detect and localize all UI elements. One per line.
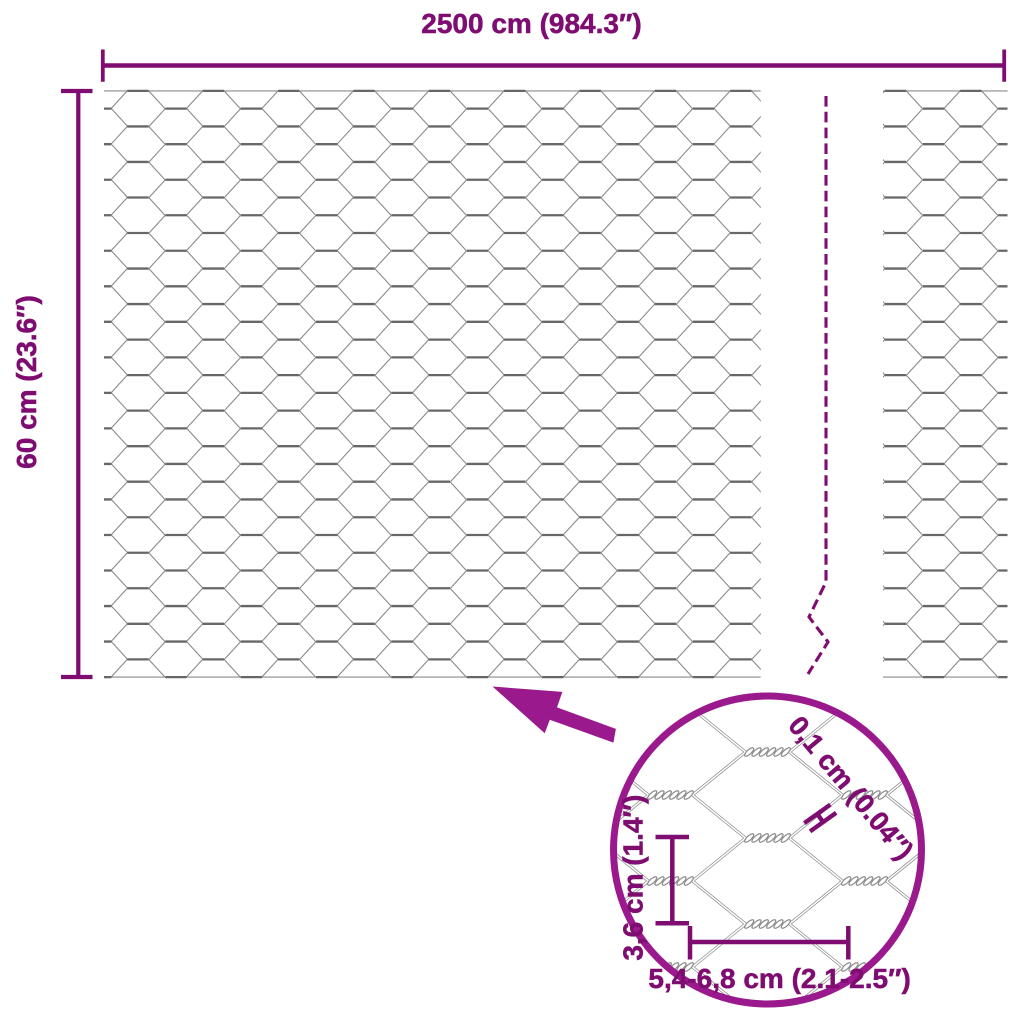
svg-text:5,4-6,8 cm (2.1-2.5″): 5,4-6,8 cm (2.1-2.5″)	[648, 963, 910, 994]
svg-text:2500 cm (984.3″): 2500 cm (984.3″)	[421, 8, 641, 39]
svg-text:3,6 cm (1.4″): 3,6 cm (1.4″)	[617, 795, 648, 961]
svg-text:60 cm (23.6″): 60 cm (23.6″)	[11, 295, 42, 469]
